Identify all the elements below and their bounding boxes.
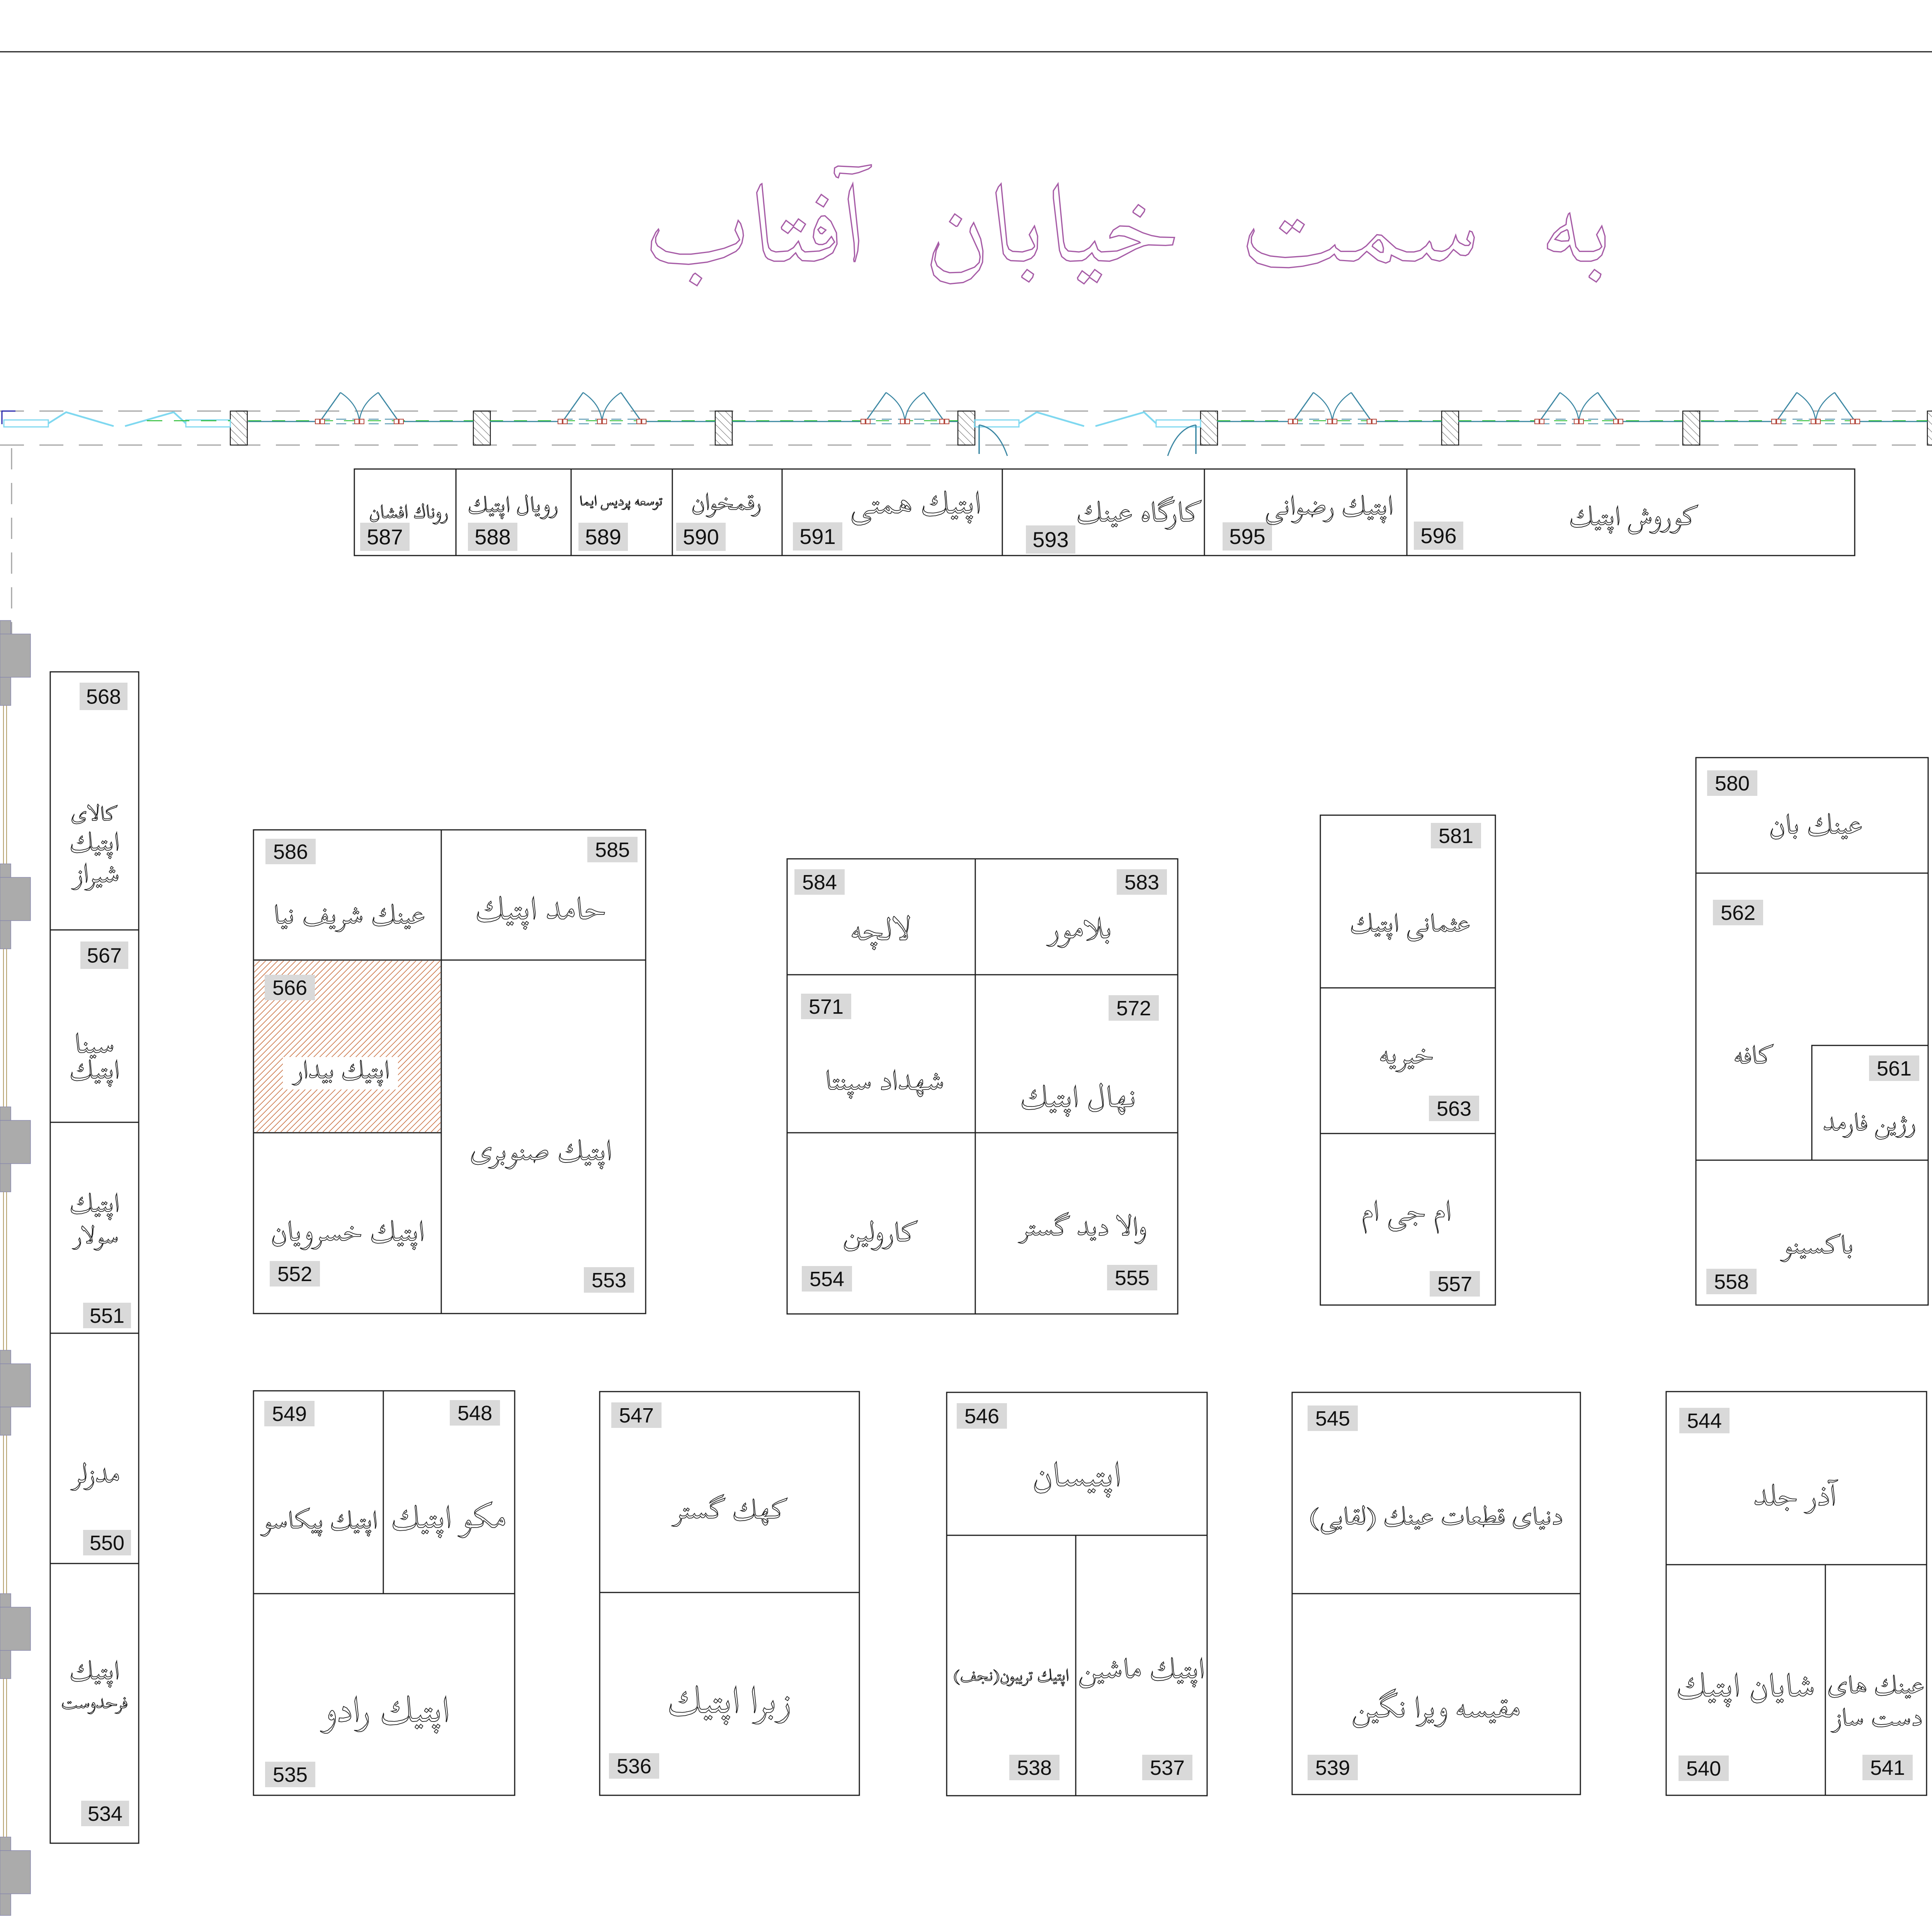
svg-text:554: 554 — [810, 1268, 844, 1291]
svg-text:536: 536 — [617, 1755, 651, 1778]
svg-text:571: 571 — [809, 995, 844, 1018]
svg-text:544: 544 — [1687, 1409, 1722, 1433]
svg-text:581: 581 — [1439, 824, 1473, 848]
svg-text:584: 584 — [802, 871, 837, 894]
svg-text:563: 563 — [1437, 1097, 1471, 1120]
svg-text:537: 537 — [1150, 1756, 1185, 1779]
svg-text:586: 586 — [273, 840, 308, 863]
svg-text:555: 555 — [1115, 1266, 1150, 1290]
svg-text:539: 539 — [1315, 1756, 1350, 1779]
svg-text:596: 596 — [1420, 523, 1456, 548]
svg-text:583: 583 — [1124, 871, 1159, 894]
svg-text:558: 558 — [1714, 1270, 1749, 1293]
svg-text:545: 545 — [1315, 1407, 1350, 1430]
svg-text:567: 567 — [87, 944, 122, 967]
svg-text:557: 557 — [1437, 1273, 1472, 1296]
svg-text:551: 551 — [90, 1304, 124, 1327]
svg-text:588: 588 — [474, 525, 510, 549]
svg-text:553: 553 — [592, 1269, 626, 1292]
svg-text:534: 534 — [88, 1802, 122, 1825]
svg-text:547: 547 — [619, 1404, 654, 1427]
svg-text:572: 572 — [1116, 997, 1151, 1020]
svg-text:593: 593 — [1032, 527, 1068, 552]
svg-text:561: 561 — [1877, 1057, 1912, 1080]
svg-text:546: 546 — [964, 1405, 999, 1428]
svg-text:595: 595 — [1229, 524, 1265, 549]
svg-text:566: 566 — [272, 976, 307, 999]
svg-text:589: 589 — [585, 525, 621, 549]
svg-text:585: 585 — [595, 838, 630, 862]
svg-text:550: 550 — [90, 1531, 124, 1555]
svg-text:549: 549 — [272, 1402, 307, 1426]
svg-text:548: 548 — [457, 1402, 492, 1425]
svg-text:580: 580 — [1715, 772, 1750, 795]
svg-text:562: 562 — [1721, 901, 1755, 925]
svg-text:552: 552 — [277, 1263, 312, 1286]
svg-text:568: 568 — [86, 685, 121, 708]
svg-text:541: 541 — [1870, 1756, 1905, 1779]
svg-text:590: 590 — [683, 525, 719, 549]
svg-text:540: 540 — [1686, 1757, 1721, 1780]
svg-text:591: 591 — [799, 524, 835, 549]
svg-text:587: 587 — [367, 525, 403, 549]
svg-text:538: 538 — [1017, 1756, 1052, 1779]
svg-text:535: 535 — [273, 1763, 308, 1786]
